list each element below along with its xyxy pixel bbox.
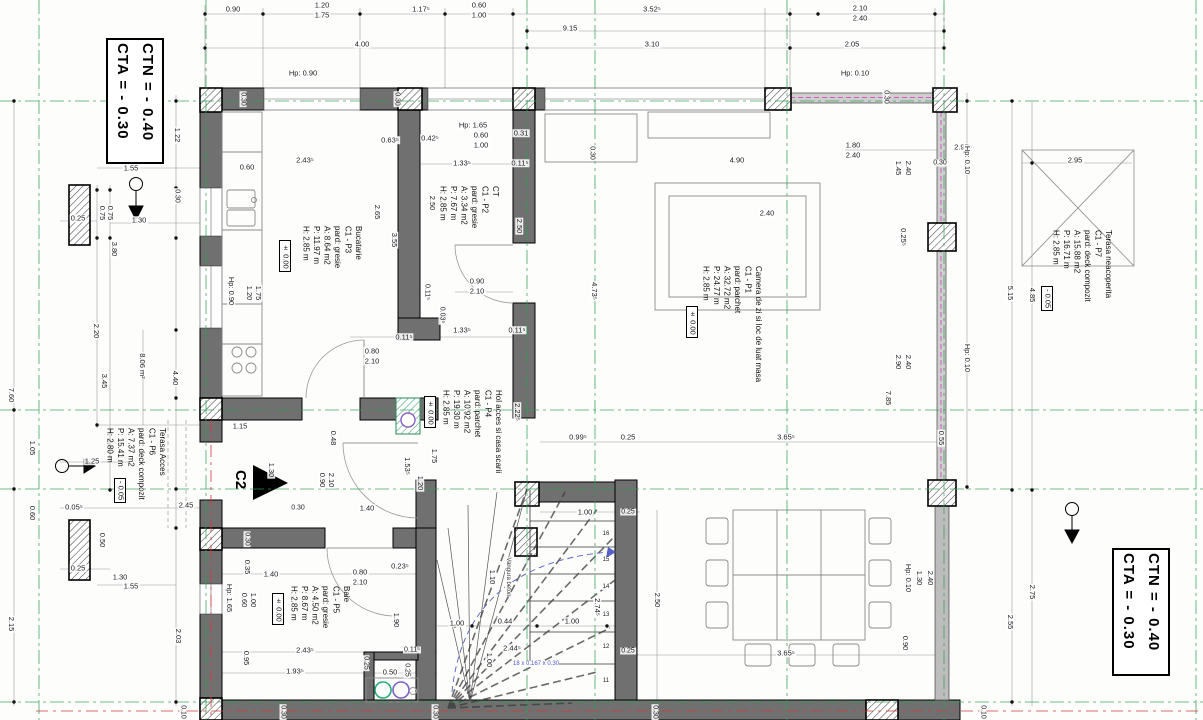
dim-label: 1.00 bbox=[485, 652, 493, 669]
dim-label: Hp: 0.90 bbox=[288, 69, 318, 77]
dim-label: 2.05 bbox=[844, 40, 861, 48]
room-floor: pard: parchet bbox=[732, 266, 743, 431]
dim-label: 2.90 bbox=[894, 354, 902, 371]
room-height: H: 2.85 m bbox=[300, 226, 311, 326]
dim-label: 0.50 bbox=[382, 668, 399, 676]
dim-label: Hp: 0.90 bbox=[227, 276, 235, 306]
dim-label: 2.40 bbox=[904, 354, 912, 371]
hall-washbasin bbox=[396, 398, 420, 434]
dim-label: 0.44 bbox=[497, 617, 514, 625]
dim-label: 3.55 bbox=[390, 232, 398, 249]
section-label: C2 bbox=[232, 470, 249, 489]
dim-label: 3.80 bbox=[110, 241, 118, 258]
dim-label: 0.30 bbox=[432, 704, 439, 720]
room-floor: pard: deck compozit bbox=[1082, 230, 1093, 365]
dim-label: 0.25 bbox=[620, 509, 636, 516]
dim-label: 2.10 bbox=[469, 287, 486, 295]
dim-label: 0.35 bbox=[243, 559, 251, 576]
elevation-line: CTN = - 0.40 bbox=[1141, 553, 1166, 671]
dim-label: 1.90 bbox=[392, 612, 400, 629]
dim-label: 1.33⁵ bbox=[452, 159, 472, 167]
dim-label: 2.50 bbox=[515, 218, 523, 235]
dim-label: Hp: 1.65 bbox=[225, 583, 233, 613]
dim-label: 3.10 bbox=[644, 40, 661, 48]
dim-label: 1.20 bbox=[314, 1, 331, 9]
dim-label: 1.55 bbox=[123, 582, 140, 590]
dim-label: 8.06 m² bbox=[138, 352, 146, 379]
dim-label: 7.60 bbox=[7, 387, 15, 404]
dim-label: Hp: 0.10 bbox=[904, 563, 912, 593]
dim-label: Hp: 0.10 bbox=[840, 69, 870, 77]
room-code: C1 - P3 bbox=[342, 226, 353, 326]
room-floor: pard: gresie bbox=[332, 226, 343, 326]
dim-label: 1.30 bbox=[131, 216, 148, 224]
dim-label: 2.40 bbox=[845, 151, 862, 159]
dim-label: 0.55 bbox=[937, 430, 945, 447]
dim-label: 0.75 bbox=[106, 205, 114, 222]
stair-formula: 18 x 0.167 x 0.30 bbox=[513, 661, 559, 667]
dim-label: 0.23⁵ bbox=[390, 562, 410, 570]
dim-label: 15 bbox=[602, 557, 611, 563]
room-floor: pard: parchet bbox=[472, 390, 483, 498]
room-area: A: 3.34 m2 bbox=[458, 186, 469, 276]
room-perimeter: P: 19.30 m bbox=[451, 390, 462, 498]
dim-label: 4.90 bbox=[729, 156, 746, 164]
dim-label: 2.40 bbox=[926, 570, 934, 587]
room-code: C1 - P7 bbox=[1092, 230, 1103, 365]
dim-label: 0.30 bbox=[280, 704, 287, 720]
dim-label: 1.40 bbox=[359, 504, 376, 512]
chair bbox=[706, 518, 728, 544]
elevation-box-top-left: CTA = - 0.30 CTN = - 0.40 bbox=[106, 38, 164, 164]
dim-label: 0.10 bbox=[180, 704, 187, 720]
level-badge: ± 0.00 bbox=[424, 396, 436, 428]
dim-label: 5.15 bbox=[1006, 285, 1014, 302]
dim-label: 0.60 bbox=[28, 505, 36, 522]
dim-label: 0.30 bbox=[240, 91, 247, 107]
dim-label: 0.30 bbox=[652, 704, 659, 720]
dim-label: 1.15 bbox=[232, 422, 249, 430]
dim-label: 4.73⁵ bbox=[590, 281, 598, 301]
dim-label: 0.30 bbox=[290, 505, 306, 512]
dim-label: 0.60 bbox=[471, 1, 488, 9]
dim-label: 0.50 bbox=[98, 532, 106, 549]
dim-label: 0.30 bbox=[883, 89, 890, 105]
dim-label: 4.40 bbox=[171, 370, 179, 387]
dim-label: 0.25 bbox=[70, 214, 87, 222]
level-badge: ± 0.00 bbox=[686, 306, 698, 338]
dim-label: 2.10 bbox=[327, 472, 335, 489]
dim-label: 0.11⁵ bbox=[424, 283, 431, 301]
dim-label: 1.00 bbox=[577, 508, 594, 516]
dim-label: 2.75 bbox=[1028, 584, 1036, 601]
elevation-line: CTA = - 0.30 bbox=[1116, 553, 1141, 671]
dim-label: 3.65⁵ bbox=[776, 649, 796, 657]
dim-label: 11 bbox=[602, 678, 610, 684]
level-badge: - 0.05 bbox=[114, 478, 126, 503]
dim-label: 0.11⁵ bbox=[394, 333, 413, 341]
room-name: Bucatarie bbox=[353, 226, 364, 326]
dim-label: 16 bbox=[602, 531, 611, 537]
room-code: C1 - P5 bbox=[330, 586, 341, 670]
dim-label: 2.44⁵ bbox=[502, 644, 522, 652]
dim-label: Hp: 1.65 bbox=[458, 121, 488, 129]
stairs bbox=[437, 489, 616, 708]
dim-label: 7.85 bbox=[884, 390, 892, 407]
room-height: H: 2.85 m bbox=[288, 586, 299, 670]
dim-label: 0.99⁵ bbox=[568, 433, 588, 441]
dim-label: 1.80 bbox=[845, 141, 862, 149]
elevation-box-bottom-right: CTA = - 0.30 CTN = - 0.40 bbox=[1112, 548, 1170, 676]
room-code: C1 - P6 bbox=[146, 428, 157, 548]
dim-label: 2.10 bbox=[852, 4, 869, 12]
dim-label: 1.05 bbox=[28, 440, 36, 457]
dim-label: 1.75 bbox=[430, 448, 438, 465]
dim-label: 0.80 bbox=[364, 347, 381, 355]
dim-label: 0.11⁵ bbox=[510, 159, 529, 167]
dim-label: 0.11⁵ bbox=[403, 647, 421, 654]
dim-label: 0.48 bbox=[329, 430, 337, 447]
dim-label: 0.30 bbox=[589, 145, 596, 161]
dim-label: 0.25 bbox=[363, 655, 370, 671]
dim-label: 1.00 bbox=[564, 617, 581, 625]
room-label-baie: Baie C1 - P5 pard: gresie A: 4.50 m2 P: … bbox=[288, 586, 351, 670]
dim-label: Hp: 0.10 bbox=[963, 145, 971, 175]
dim-label: 0.25 bbox=[70, 564, 87, 572]
room-floor: pard: gresie bbox=[320, 586, 331, 670]
dim-label: 2.45 bbox=[178, 501, 195, 509]
room-area: A: 8.64 m2 bbox=[321, 226, 332, 326]
room-code: C1 - P1 bbox=[742, 266, 753, 431]
room-label-hol: Hol acces si casa scarii C1 - P4 pard: p… bbox=[440, 390, 503, 498]
dim-label: 2.15 bbox=[7, 616, 15, 633]
elevation-line: CTN = - 0.40 bbox=[135, 43, 160, 159]
dim-label: 1.00 bbox=[473, 141, 490, 149]
dim-label: 2.10 bbox=[352, 578, 369, 586]
dim-label: 2.40 bbox=[904, 160, 912, 177]
room-name: Baie bbox=[341, 586, 352, 670]
room-name: Terasa neacoperita bbox=[1103, 230, 1114, 365]
room-height: H: 2.85 m bbox=[700, 266, 711, 431]
level-badge: ± 0.00 bbox=[279, 240, 291, 272]
dim-label: 1.30 bbox=[915, 570, 923, 587]
dim-label: 2.22⁵ bbox=[513, 402, 521, 422]
dim-label: 2.20 bbox=[92, 323, 100, 340]
dim-label: 0.90 bbox=[318, 472, 326, 489]
dim-label: 2.40 bbox=[852, 14, 869, 22]
kitchen-sink bbox=[227, 190, 255, 208]
room-height: H: 2.80 m bbox=[104, 428, 115, 548]
dim-label: 2.43⁵ bbox=[295, 156, 315, 164]
bath-sinks bbox=[375, 682, 417, 698]
dim-label: 2.50 bbox=[428, 195, 436, 212]
dim-label: 13 bbox=[602, 612, 611, 618]
room-height: H: 2.85 m bbox=[437, 186, 448, 276]
dim-label: 0.80 bbox=[352, 568, 369, 576]
room-area: A: 7.37 m2 bbox=[125, 428, 136, 548]
stair-stringer-note: Vangura beton bbox=[505, 558, 511, 597]
dim-label: 0.90 bbox=[469, 277, 486, 285]
dim-label: 1.75 bbox=[314, 11, 331, 19]
dim-label: 1.20 bbox=[416, 475, 424, 492]
dim-label: 1.53⁵ bbox=[403, 456, 411, 476]
dim-label: 1.10 bbox=[488, 569, 496, 586]
dim-label: 0.30 bbox=[932, 160, 948, 167]
room-area: A: 10.92 m2 bbox=[461, 390, 472, 498]
room-height: H: 2.85 m bbox=[440, 390, 451, 498]
dim-label: 2.50 bbox=[653, 592, 661, 609]
room-name: Terasa Acces bbox=[157, 428, 168, 548]
dim-label: 0.03⁵ bbox=[439, 306, 446, 325]
deck-joints bbox=[168, 420, 186, 528]
dim-label: 3.52⁵ bbox=[642, 5, 662, 13]
room-perimeter: P: 24.77 m bbox=[711, 266, 722, 431]
dim-label: 2.40 bbox=[759, 209, 776, 217]
dim-label: 2.10 bbox=[364, 357, 381, 365]
dim-label: 0.25⁵ bbox=[899, 227, 907, 247]
room-area: A: 4.50 m2 bbox=[309, 586, 320, 670]
dim-label: 2.74⁵ bbox=[593, 597, 601, 617]
room-area: A: 15.88 m2 bbox=[1071, 230, 1082, 365]
room-perimeter: P: 11.97 m bbox=[311, 226, 322, 326]
dim-label: 0.11⁵ bbox=[507, 326, 526, 334]
room-label-bucatarie: Bucatarie C1 - P3 pard: gresie A: 8.64 m… bbox=[300, 226, 363, 326]
dim-label: 1.40 bbox=[263, 570, 280, 578]
dim-label: 0.25 bbox=[620, 648, 636, 655]
floor-plan-canvas: 0.901.201.751.17⁵0.601.009.153.52⁵2.102.… bbox=[0, 0, 1203, 720]
dim-label: 1.22 bbox=[173, 127, 181, 144]
dim-label: 1.30 bbox=[267, 462, 275, 479]
room-code: C1 - P2 bbox=[479, 186, 490, 276]
dim-label: 0.10 bbox=[980, 704, 987, 720]
room-code: C1 - P4 bbox=[482, 390, 493, 498]
dim-label: 0.30 bbox=[394, 91, 401, 107]
dim-label: 0.60 bbox=[239, 163, 256, 171]
dim-label: 0.60 bbox=[240, 592, 248, 609]
dim-label: 0.25 bbox=[404, 662, 411, 678]
dim-label: 14 bbox=[602, 584, 611, 590]
dim-label: 0.90 bbox=[225, 5, 242, 13]
dim-label: 2.65 bbox=[373, 204, 381, 221]
room-perimeter: P: 8.67 m bbox=[299, 586, 310, 670]
dim-label: 1.55 bbox=[123, 164, 140, 172]
dim-label: 3.45 bbox=[100, 373, 108, 390]
dim-label: 1.20 bbox=[245, 285, 253, 302]
room-label-terasa-neacoperita: Terasa neacoperita C1 - P7 pard: deck co… bbox=[1050, 230, 1113, 365]
dim-label: 0.42⁵ bbox=[420, 134, 440, 142]
room-label-camera-de-zi: Camera de zi si loc de luat masa C1 - P1… bbox=[700, 266, 763, 431]
dim-label: 0.25 bbox=[620, 433, 637, 441]
dim-label: 9.15 bbox=[562, 24, 579, 32]
dim-label: 0.30 bbox=[174, 188, 181, 204]
dim-label: 1.33⁵ bbox=[452, 326, 472, 334]
dim-label: 1.93⁵ bbox=[285, 667, 305, 675]
room-name: CT bbox=[490, 186, 501, 276]
dim-label: 0.63⁵ bbox=[380, 136, 400, 144]
dim-label: 0.05⁵ bbox=[64, 503, 84, 511]
room-perimeter: P: 16.71 m bbox=[1061, 230, 1072, 365]
dim-label: 3.65⁵ bbox=[776, 433, 796, 441]
room-label-ct: CT C1 - P2 pard: gresie A: 3.34 m2 P: 7.… bbox=[437, 186, 500, 276]
dim-label: 0.31 bbox=[513, 129, 530, 137]
dim-label: 2.43⁵ bbox=[295, 646, 315, 654]
dim-label: 2.03 bbox=[174, 628, 182, 645]
dim-label: 4.85 bbox=[1028, 287, 1036, 304]
dim-label: 0.95 bbox=[242, 650, 250, 667]
dim-label: 1.00 bbox=[249, 592, 257, 609]
elevation-line: CTA = - 0.30 bbox=[110, 43, 135, 159]
dim-label: 0.60 bbox=[473, 131, 490, 139]
stove-burner bbox=[232, 347, 242, 357]
dim-label: 12 bbox=[602, 644, 611, 650]
level-badge: ± 0.00 bbox=[272, 593, 284, 625]
dim-label: 1.17⁵ bbox=[411, 5, 431, 13]
dim-label: 0.30 bbox=[244, 531, 251, 547]
room-area: A: 32.72 m2 bbox=[721, 266, 732, 431]
dim-label: 0.75 bbox=[98, 205, 106, 222]
dim-label: 2.55 bbox=[1006, 614, 1014, 631]
room-floor: pard: deck compozit bbox=[136, 428, 147, 548]
dim-label: 1.45 bbox=[894, 160, 902, 177]
room-perimeter: P: 7.67 m bbox=[448, 186, 459, 276]
room-name: Camera de zi si loc de luat masa bbox=[753, 266, 764, 431]
dim-label: 1.00 bbox=[471, 11, 488, 19]
dim-label: 4.00 bbox=[354, 40, 371, 48]
dim-label: 1.75 bbox=[254, 285, 262, 302]
dim-label: 2.95 bbox=[1067, 156, 1084, 164]
room-floor: pard: gresie bbox=[469, 186, 480, 276]
dim-label: 1.25 bbox=[84, 457, 101, 465]
dim-label: 1.00 bbox=[449, 619, 466, 627]
dim-label: 0.90 bbox=[901, 635, 909, 652]
dim-label: 1.30 bbox=[112, 573, 129, 581]
room-name: Hol acces si casa scarii bbox=[493, 390, 504, 498]
dim-label: Hp: 0.10 bbox=[963, 343, 971, 373]
level-badge: - 0.05 bbox=[1041, 286, 1053, 311]
